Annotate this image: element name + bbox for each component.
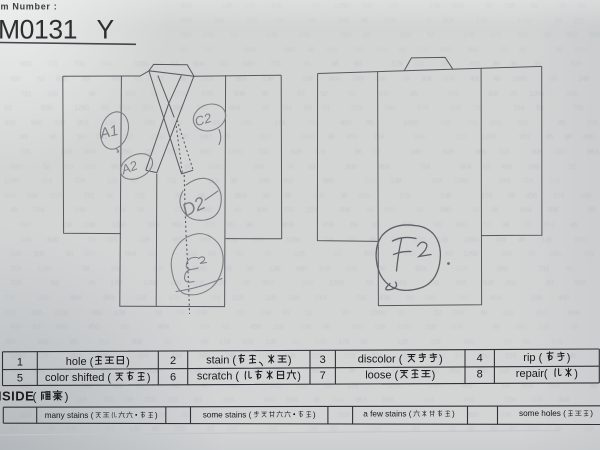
svg-text:93: 93	[155, 308, 163, 317]
svg-text:450: 450	[65, 424, 76, 433]
svg-text:hole (: hole (	[66, 356, 94, 368]
svg-text:118: 118	[504, 1, 515, 10]
svg-text:1260: 1260	[300, 132, 315, 141]
svg-text:): )	[65, 390, 69, 404]
svg-text:680: 680	[296, 264, 307, 273]
svg-text:5: 5	[17, 373, 23, 385]
svg-text:93: 93	[406, 293, 414, 302]
svg-text:38: 38	[360, 337, 368, 346]
svg-text:953: 953	[384, 205, 395, 214]
svg-text:604: 604	[443, 74, 454, 83]
svg-text:215: 215	[302, 278, 313, 287]
svg-text:953: 953	[355, 395, 366, 404]
svg-text:953: 953	[235, 191, 246, 200]
svg-text:118: 118	[107, 176, 118, 185]
svg-text:724: 724	[10, 278, 21, 287]
svg-text:215: 215	[20, 410, 31, 419]
svg-text:604: 604	[158, 322, 169, 331]
svg-text:178: 178	[476, 16, 487, 25]
svg-text:215: 215	[204, 220, 215, 229]
svg-text:): )	[567, 352, 571, 364]
svg-text:953: 953	[467, 45, 478, 54]
svg-text:85: 85	[185, 162, 193, 171]
svg-text:724: 724	[307, 118, 318, 127]
svg-text:604: 604	[490, 293, 501, 302]
svg-text:724: 724	[209, 293, 220, 302]
svg-text:63: 63	[237, 308, 245, 317]
svg-text:1260: 1260	[286, 235, 301, 244]
svg-text:85: 85	[243, 278, 251, 287]
svg-text:52: 52	[425, 16, 433, 25]
svg-text:450: 450	[515, 322, 526, 331]
svg-text:308: 308	[482, 278, 493, 287]
svg-text:118: 118	[265, 293, 276, 302]
svg-text:4: 4	[477, 353, 483, 365]
svg-text:604: 604	[400, 30, 411, 39]
svg-text:680: 680	[284, 45, 295, 54]
svg-text:85: 85	[509, 424, 517, 433]
svg-text:138: 138	[450, 103, 461, 112]
svg-text:1: 1	[17, 356, 23, 368]
svg-text:38: 38	[230, 176, 238, 185]
svg-text:93: 93	[137, 205, 145, 214]
svg-text:52: 52	[236, 249, 244, 258]
svg-text:836: 836	[138, 351, 149, 360]
svg-text:): )	[439, 353, 443, 365]
svg-text:52: 52	[569, 162, 577, 171]
svg-text:450: 450	[527, 424, 538, 433]
svg-text:): )	[313, 410, 316, 419]
svg-text:color shifted (: color shifted (	[45, 372, 111, 384]
svg-text:46: 46	[261, 89, 269, 98]
svg-text:138: 138	[74, 205, 85, 214]
svg-text:724: 724	[413, 59, 424, 68]
svg-text:680: 680	[456, 220, 467, 229]
svg-text:604: 604	[125, 249, 136, 258]
svg-text:178: 178	[417, 103, 428, 112]
svg-text:731: 731	[103, 395, 114, 404]
svg-text:836: 836	[223, 395, 234, 404]
svg-text:604: 604	[70, 293, 81, 302]
svg-text:680: 680	[20, 220, 31, 229]
svg-text:repair(: repair(	[516, 368, 548, 380]
svg-text:): )	[432, 369, 436, 381]
svg-text:178: 178	[338, 337, 349, 346]
svg-text:249: 249	[528, 162, 539, 171]
svg-text:680: 680	[31, 118, 42, 127]
svg-text:138: 138	[288, 293, 299, 302]
svg-text:836: 836	[234, 89, 245, 98]
svg-text:680: 680	[497, 264, 508, 273]
svg-text:450: 450	[326, 45, 337, 54]
svg-text:953: 953	[535, 308, 546, 317]
svg-text:63: 63	[363, 30, 371, 39]
svg-text:118: 118	[265, 337, 276, 346]
svg-text:52: 52	[473, 205, 481, 214]
svg-text:93: 93	[20, 132, 28, 141]
svg-text:1260: 1260	[329, 278, 344, 287]
svg-text:178: 178	[391, 59, 402, 68]
svg-text:138: 138	[61, 220, 72, 229]
svg-text:46: 46	[480, 308, 488, 317]
svg-text:215: 215	[98, 337, 109, 346]
svg-text:38: 38	[522, 337, 530, 346]
svg-text:249: 249	[384, 103, 395, 112]
svg-text:731: 731	[554, 366, 565, 375]
svg-text:308: 308	[570, 59, 581, 68]
svg-text:215: 215	[573, 16, 584, 25]
svg-text:836: 836	[382, 395, 393, 404]
svg-text:1260: 1260	[74, 103, 89, 112]
svg-text:38: 38	[500, 45, 508, 54]
svg-text:724: 724	[74, 176, 85, 185]
svg-text:953: 953	[171, 220, 182, 229]
svg-text:38: 38	[307, 45, 315, 54]
svg-text:249: 249	[270, 381, 281, 390]
svg-text:38: 38	[518, 45, 526, 54]
svg-text:215: 215	[388, 381, 399, 390]
svg-text:604: 604	[451, 322, 462, 331]
svg-text:249: 249	[332, 395, 343, 404]
svg-text:450: 450	[56, 322, 67, 331]
svg-text:215: 215	[364, 176, 375, 185]
svg-text:93: 93	[354, 59, 362, 68]
svg-text:38: 38	[491, 205, 499, 214]
svg-text:1260: 1260	[143, 278, 158, 287]
svg-text:215: 215	[174, 424, 185, 433]
svg-text:63: 63	[504, 337, 512, 346]
svg-text:some stains (: some stains (	[203, 410, 252, 419]
svg-text:85: 85	[350, 220, 358, 229]
svg-text:118: 118	[139, 235, 150, 244]
svg-text:450: 450	[363, 249, 374, 258]
svg-text:731: 731	[167, 147, 178, 156]
svg-text:308: 308	[377, 89, 388, 98]
svg-text:731: 731	[306, 16, 317, 25]
svg-text:836: 836	[443, 147, 454, 156]
svg-text:52: 52	[4, 103, 12, 112]
svg-text:38: 38	[286, 162, 294, 171]
svg-text:249: 249	[410, 147, 421, 156]
svg-text:178: 178	[347, 381, 358, 390]
svg-text:93: 93	[47, 424, 55, 433]
svg-text:118: 118	[273, 322, 284, 331]
svg-text:731: 731	[283, 205, 294, 214]
svg-text:85: 85	[546, 132, 554, 141]
svg-text:215: 215	[315, 337, 326, 346]
svg-text:38: 38	[571, 322, 579, 331]
svg-text:836: 836	[490, 30, 501, 39]
svg-text:85: 85	[227, 220, 235, 229]
svg-text:93: 93	[82, 74, 90, 83]
svg-text:215: 215	[144, 395, 155, 404]
svg-text:): )	[126, 356, 130, 368]
svg-text:38: 38	[327, 132, 335, 141]
svg-text:836: 836	[574, 235, 585, 244]
svg-text:836: 836	[517, 30, 528, 39]
svg-text:308: 308	[376, 45, 387, 54]
svg-text:604: 604	[423, 395, 434, 404]
svg-text:1260: 1260	[4, 176, 19, 185]
svg-text:836: 836	[352, 322, 363, 331]
svg-text:249: 249	[453, 308, 464, 317]
svg-text:38: 38	[245, 220, 253, 229]
svg-text:118: 118	[430, 337, 441, 346]
svg-text:953: 953	[566, 30, 577, 39]
svg-text:249: 249	[495, 235, 506, 244]
svg-text:836: 836	[259, 176, 270, 185]
svg-text:604: 604	[264, 395, 275, 404]
svg-text:138: 138	[374, 322, 385, 331]
svg-text:46: 46	[493, 74, 501, 83]
svg-text:93: 93	[230, 30, 238, 39]
svg-text:): )	[147, 372, 151, 384]
svg-text:stain (: stain (	[206, 355, 236, 367]
svg-text:85: 85	[528, 249, 536, 258]
svg-text:63: 63	[212, 118, 220, 127]
svg-text:215: 215	[171, 118, 182, 127]
svg-text:215: 215	[84, 162, 95, 171]
svg-text:308: 308	[152, 264, 163, 273]
svg-text:680: 680	[517, 118, 528, 127]
svg-text:680: 680	[550, 249, 561, 258]
svg-text:38: 38	[397, 308, 405, 317]
svg-text:731: 731	[20, 89, 31, 98]
svg-text:724: 724	[323, 235, 334, 244]
svg-text:604: 604	[329, 74, 340, 83]
svg-text:118: 118	[388, 1, 399, 10]
svg-text:63: 63	[106, 424, 114, 433]
svg-text:46: 46	[366, 205, 374, 214]
svg-text:836: 836	[111, 74, 122, 83]
svg-text:63: 63	[194, 395, 202, 404]
svg-text:604: 604	[520, 205, 531, 214]
svg-text:249: 249	[447, 89, 458, 98]
svg-text:63: 63	[37, 74, 45, 83]
svg-text:38: 38	[354, 147, 362, 156]
svg-text:52: 52	[427, 30, 435, 39]
svg-text:953: 953	[20, 59, 31, 68]
svg-text:249: 249	[499, 176, 510, 185]
svg-text:63: 63	[33, 322, 41, 331]
svg-text:63: 63	[404, 351, 412, 360]
svg-text:138: 138	[269, 264, 280, 273]
svg-text:63: 63	[546, 278, 554, 287]
svg-text:1260: 1260	[334, 1, 349, 10]
svg-text:308: 308	[547, 205, 558, 214]
svg-text:1260: 1260	[208, 162, 223, 171]
svg-text:138: 138	[566, 89, 577, 98]
svg-text:93: 93	[164, 337, 172, 346]
svg-text:215: 215	[106, 235, 117, 244]
svg-text:1260: 1260	[397, 322, 412, 331]
svg-text:118: 118	[258, 351, 269, 360]
svg-text:1260: 1260	[463, 249, 478, 258]
svg-text:604: 604	[4, 191, 15, 200]
svg-text:836: 836	[500, 410, 511, 419]
svg-text:178: 178	[417, 45, 428, 54]
svg-text:118: 118	[136, 293, 147, 302]
svg-text:93: 93	[434, 220, 442, 229]
svg-text:85: 85	[410, 89, 418, 98]
svg-text:6: 6	[170, 371, 176, 383]
svg-text:680: 680	[461, 381, 472, 390]
svg-text:138: 138	[346, 264, 357, 273]
svg-text:450: 450	[10, 322, 21, 331]
svg-text:93: 93	[342, 308, 350, 317]
svg-text:85: 85	[399, 45, 407, 54]
svg-text:93: 93	[220, 59, 228, 68]
svg-text:680: 680	[200, 132, 211, 141]
svg-text:836: 836	[379, 293, 390, 302]
svg-text:118: 118	[307, 424, 318, 433]
svg-text:249: 249	[203, 30, 214, 39]
svg-text:1260: 1260	[454, 176, 469, 185]
svg-text:52: 52	[483, 220, 491, 229]
svg-text:604: 604	[244, 45, 255, 54]
svg-text:308: 308	[226, 424, 237, 433]
svg-text:52: 52	[222, 322, 230, 331]
svg-text:724: 724	[33, 205, 44, 214]
svg-text:249: 249	[213, 16, 224, 25]
svg-text:1260: 1260	[111, 220, 126, 229]
svg-text:118: 118	[431, 176, 442, 185]
svg-text:249: 249	[353, 45, 364, 54]
svg-text:63: 63	[297, 89, 305, 98]
svg-text:450: 450	[526, 191, 537, 200]
svg-text:680: 680	[180, 30, 191, 39]
svg-text:63: 63	[207, 424, 215, 433]
svg-text:450: 450	[463, 337, 474, 346]
svg-text:731: 731	[83, 191, 94, 200]
svg-text:many stains (: many stains (	[45, 411, 94, 420]
svg-text:604: 604	[180, 16, 191, 25]
svg-text:308: 308	[168, 293, 179, 302]
svg-text:731: 731	[74, 59, 85, 68]
svg-text:52: 52	[524, 220, 532, 229]
svg-text:138: 138	[502, 308, 513, 317]
svg-text:604: 604	[84, 147, 95, 156]
svg-text:138: 138	[266, 30, 277, 39]
svg-text:724: 724	[273, 16, 284, 25]
svg-text:450: 450	[404, 249, 415, 258]
svg-text:604: 604	[286, 395, 297, 404]
svg-text:52: 52	[292, 337, 300, 346]
svg-text:138: 138	[429, 1, 440, 10]
svg-text:46: 46	[492, 322, 500, 331]
svg-text:38: 38	[554, 16, 562, 25]
svg-text:63: 63	[455, 351, 463, 360]
svg-text:38: 38	[340, 191, 348, 200]
svg-text:215: 215	[315, 293, 326, 302]
svg-text:604: 604	[460, 162, 471, 171]
svg-text:731: 731	[134, 191, 145, 200]
svg-text:953: 953	[519, 132, 530, 141]
svg-text:93: 93	[262, 103, 270, 112]
svg-text:178: 178	[37, 351, 48, 360]
svg-text:63: 63	[445, 249, 453, 258]
svg-text:836: 836	[589, 30, 600, 39]
svg-text:1260: 1260	[512, 74, 527, 83]
svg-text:2: 2	[170, 355, 176, 367]
svg-text:604: 604	[531, 395, 542, 404]
svg-text:63: 63	[483, 162, 491, 171]
svg-text:A1: A1	[97, 122, 120, 143]
svg-text:138: 138	[260, 308, 271, 317]
svg-text:450: 450	[554, 147, 565, 156]
svg-text:38: 38	[262, 191, 270, 200]
svg-text:836: 836	[323, 220, 334, 229]
svg-text:450: 450	[583, 132, 594, 141]
svg-text:731: 731	[166, 176, 177, 185]
svg-text:38: 38	[331, 59, 339, 68]
svg-text:836: 836	[47, 235, 58, 244]
svg-text:308: 308	[256, 205, 267, 214]
svg-text:46: 46	[518, 235, 526, 244]
svg-text:731: 731	[356, 293, 367, 302]
svg-text:249: 249	[253, 162, 264, 171]
svg-text:46: 46	[88, 278, 96, 287]
svg-text:308: 308	[345, 162, 356, 171]
svg-text:1260: 1260	[370, 308, 385, 317]
svg-text:138: 138	[541, 235, 552, 244]
svg-text:724: 724	[504, 395, 515, 404]
svg-text:63: 63	[66, 249, 74, 258]
svg-text:308: 308	[180, 1, 191, 10]
svg-text:215: 215	[344, 351, 355, 360]
svg-text:178: 178	[428, 381, 439, 390]
svg-text:1260: 1260	[403, 118, 418, 127]
svg-text:450: 450	[84, 249, 95, 258]
svg-text:215: 215	[456, 264, 467, 273]
svg-text:178: 178	[274, 118, 285, 127]
svg-text:836: 836	[177, 132, 188, 141]
svg-text:450: 450	[4, 337, 15, 346]
svg-text:46: 46	[559, 1, 567, 10]
svg-text:836: 836	[574, 45, 585, 54]
svg-text:953: 953	[587, 147, 598, 156]
svg-text:731: 731	[549, 176, 560, 185]
svg-text:138: 138	[424, 293, 435, 302]
svg-text:450: 450	[470, 74, 481, 83]
svg-text:308: 308	[339, 205, 350, 214]
svg-text:249: 249	[352, 74, 363, 83]
svg-text:1260: 1260	[117, 147, 132, 156]
svg-text:215: 215	[338, 410, 349, 419]
svg-text:): )	[288, 355, 292, 367]
svg-text:215: 215	[548, 381, 559, 390]
svg-text:215: 215	[457, 293, 468, 302]
svg-text:52: 52	[485, 1, 493, 10]
svg-text:836: 836	[31, 308, 42, 317]
svg-text:450: 450	[501, 162, 512, 171]
svg-text:680: 680	[440, 205, 451, 214]
svg-text:249: 249	[20, 235, 31, 244]
svg-text:604: 604	[415, 264, 426, 273]
svg-text:308: 308	[531, 147, 542, 156]
svg-text:38: 38	[589, 381, 597, 390]
svg-text:953: 953	[346, 132, 357, 141]
svg-text:INSIDE: INSIDE	[0, 389, 34, 404]
svg-text:38: 38	[502, 220, 510, 229]
svg-text:249: 249	[199, 235, 210, 244]
svg-text:215: 215	[505, 351, 516, 360]
svg-text:836: 836	[4, 308, 15, 317]
svg-text:308: 308	[4, 118, 15, 127]
svg-text:52: 52	[265, 249, 273, 258]
svg-text:38: 38	[324, 381, 332, 390]
svg-text:a few stains (: a few stains (	[363, 410, 412, 419]
